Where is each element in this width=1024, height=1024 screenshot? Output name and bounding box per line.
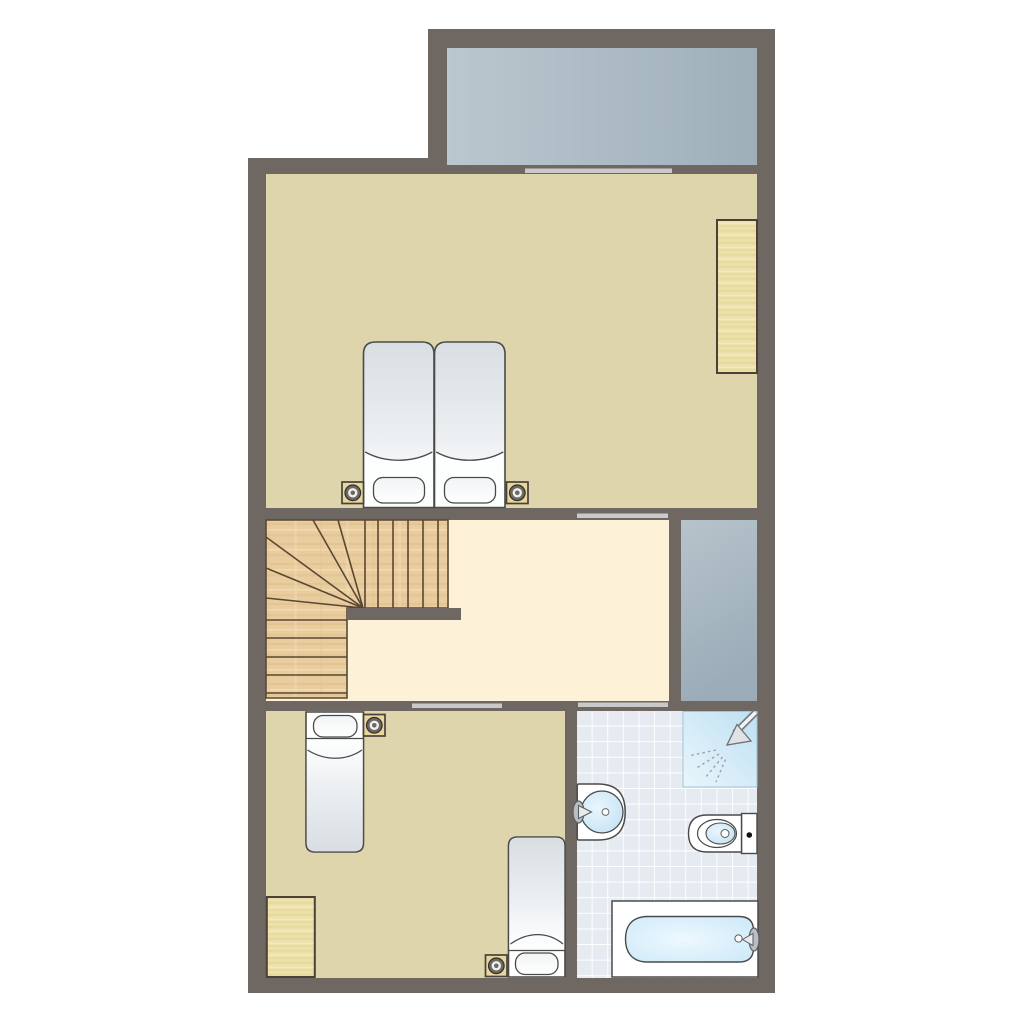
bedroom2-door	[412, 704, 502, 709]
pillow	[374, 478, 425, 504]
blanket	[307, 739, 363, 852]
lamp-center	[351, 491, 356, 496]
staircase-spine-wall	[347, 608, 461, 620]
wall-right	[757, 29, 775, 993]
wall-bedroom1-landing	[266, 508, 757, 520]
balcony-sliding-door	[525, 169, 672, 174]
floor-plan	[0, 0, 1024, 1024]
tub-basin	[626, 917, 754, 963]
flush-button	[747, 832, 753, 838]
single-bed-top	[306, 712, 364, 852]
toilet-drain	[721, 830, 729, 838]
wall-landing-void	[669, 520, 681, 701]
lamp-center	[494, 964, 499, 969]
bedroom1-door	[577, 514, 668, 519]
void-floor	[681, 520, 757, 701]
nightstand-lamp-left	[342, 482, 364, 504]
pillow	[314, 716, 358, 738]
wall-balcony-left	[428, 29, 447, 174]
balcony-floor	[447, 48, 757, 165]
wall-bottom	[248, 978, 775, 993]
pillow	[516, 953, 559, 975]
wardrobe	[717, 220, 757, 373]
toilet	[689, 814, 758, 854]
single-bed-bottom	[509, 837, 566, 977]
bedroom1-floor	[266, 174, 757, 508]
washbasin	[573, 784, 625, 840]
nightstand-lamp-right	[507, 482, 529, 504]
tub-drain	[735, 935, 742, 942]
wall-balcony-top	[428, 29, 775, 48]
blanket	[509, 838, 564, 951]
wall-bedroom2-bathroom	[565, 711, 577, 978]
wall-left	[248, 158, 266, 993]
lamp-center	[372, 723, 377, 728]
bathtub	[612, 901, 759, 977]
nightstand-lamp-2	[486, 955, 508, 977]
pillow	[445, 478, 496, 504]
lamp-center	[515, 491, 520, 496]
nightstand-lamp-1	[364, 715, 386, 737]
double-bed	[364, 342, 506, 508]
wall-landing-bottomrooms	[266, 701, 757, 711]
shower	[683, 712, 757, 788]
bathroom-door	[578, 703, 668, 708]
wardrobe	[267, 897, 315, 977]
floor-plan-canvas	[0, 0, 1024, 1024]
basin-drain	[602, 809, 609, 816]
